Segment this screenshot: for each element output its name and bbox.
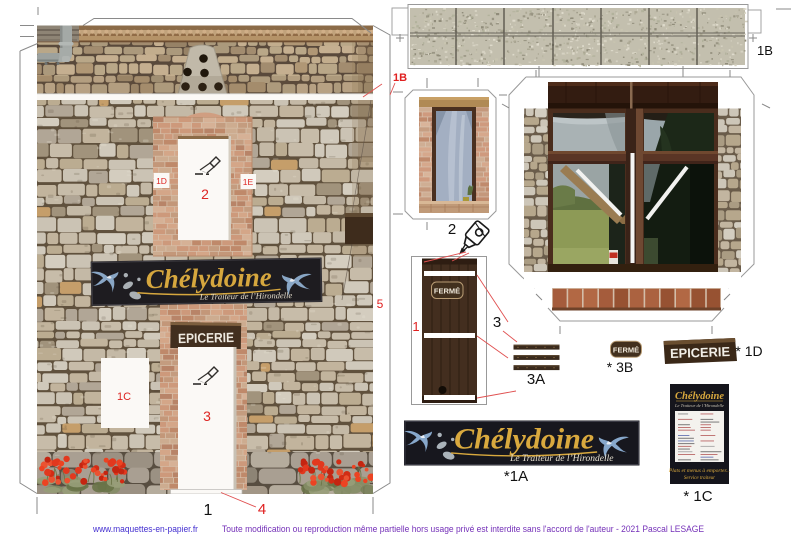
- svg-text:*1A: *1A: [504, 468, 528, 485]
- svg-text:1: 1: [204, 502, 213, 519]
- svg-text:Chélydoine: Chélydoine: [454, 422, 594, 455]
- svg-text:Plats et menus à emporter...: Plats et menus à emporter...: [668, 468, 730, 474]
- svg-text:1B: 1B: [757, 43, 773, 58]
- svg-text:Chélydoine: Chélydoine: [675, 391, 724, 402]
- svg-text:1B: 1B: [393, 72, 407, 84]
- svg-text:FERMÉ: FERMÉ: [613, 346, 639, 355]
- svg-text:Le Traiteur de l’Hirondelle: Le Traiteur de l’Hirondelle: [509, 454, 613, 464]
- svg-text:3: 3: [493, 314, 501, 331]
- svg-text:5: 5: [377, 297, 384, 311]
- svg-text:* 1D: * 1D: [735, 343, 762, 359]
- svg-text:2: 2: [448, 221, 456, 238]
- svg-text:4: 4: [258, 501, 266, 518]
- svg-text:EPICERIE: EPICERIE: [670, 344, 731, 361]
- svg-text:1: 1: [412, 319, 419, 334]
- svg-text:* 3B: * 3B: [607, 359, 633, 375]
- svg-text:Le Traiteur de l’Hirondelle: Le Traiteur de l’Hirondelle: [674, 403, 724, 408]
- svg-text:* 1C: * 1C: [683, 488, 712, 505]
- svg-text:www.maquettes-en-papier.fr: www.maquettes-en-papier.fr: [92, 524, 198, 534]
- svg-text:Service traiteur: Service traiteur: [684, 476, 715, 481]
- svg-text:3A: 3A: [527, 371, 545, 388]
- svg-text:Toute modification ou reproduc: Toute modification ou reproduction même …: [222, 524, 704, 534]
- svg-text:FERMÉ: FERMÉ: [434, 287, 460, 296]
